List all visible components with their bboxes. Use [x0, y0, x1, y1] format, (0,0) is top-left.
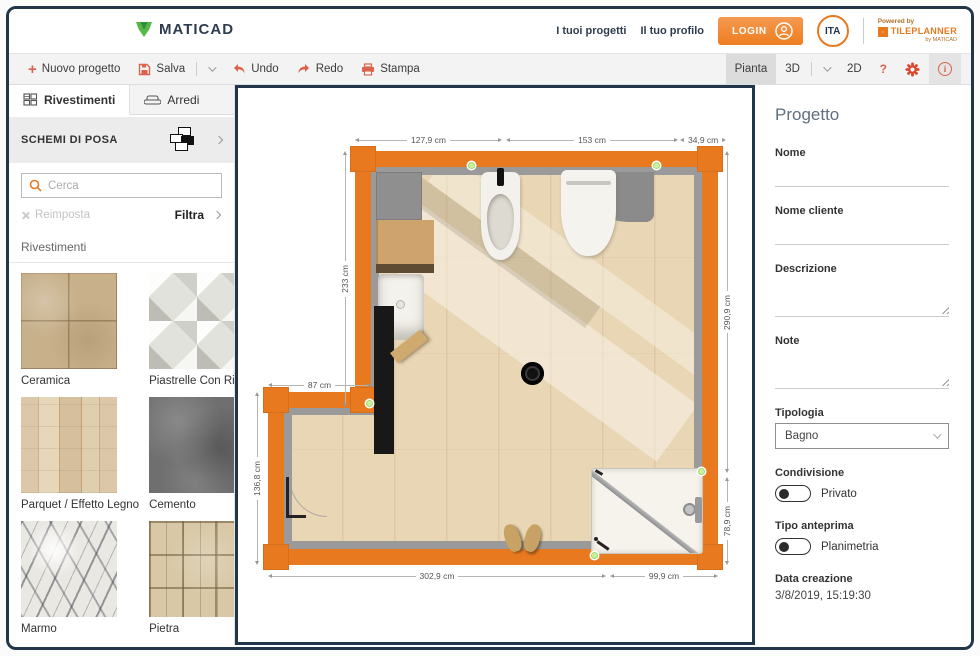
snap-point[interactable]	[591, 552, 598, 559]
settings-button[interactable]	[896, 54, 929, 84]
field-tipo-anteprima: Tipo anteprima Planimetria	[775, 520, 949, 555]
floor-drain[interactable]	[521, 362, 544, 385]
category-label: Marmo	[21, 623, 139, 635]
view-plan-button[interactable]: Pianta	[726, 54, 777, 84]
category-label: Parquet / Effetto Legno	[21, 499, 139, 511]
condivisione-toggle[interactable]	[775, 485, 811, 502]
ceramica-thumbnail	[21, 273, 117, 369]
note-label: Note	[775, 335, 949, 347]
field-nome-cliente: Nome cliente	[775, 205, 949, 245]
shower-shelf[interactable]	[376, 172, 422, 220]
nome-label: Nome	[775, 147, 949, 159]
shower-fitting	[594, 537, 598, 541]
wall-left-upper[interactable]	[355, 151, 371, 407]
tab-rivestimenti-label: Rivestimenti	[44, 93, 115, 107]
tipologia-select[interactable]: Bagno	[775, 423, 949, 449]
language-button[interactable]: ITA	[817, 15, 849, 47]
powered-by-block: Powered by TILEPLANNER by MATICAD	[878, 18, 957, 43]
wall-right[interactable]	[702, 151, 718, 565]
nome-cliente-label: Nome cliente	[775, 205, 949, 217]
data-creazione-value: 3/8/2019, 15:19:30	[775, 590, 949, 602]
slipper	[501, 522, 524, 553]
wall-left-lower[interactable]	[268, 392, 284, 565]
laying-scheme-icon	[170, 127, 200, 153]
redo-label: Redo	[316, 63, 344, 75]
wall-corner[interactable]	[263, 544, 289, 570]
chevron-right-icon	[215, 136, 223, 144]
powered-by-label: Powered by	[878, 18, 957, 26]
category-parquet[interactable]: Parquet / Effetto Legno	[21, 397, 139, 511]
view-3d-dropdown[interactable]	[814, 54, 838, 84]
bidet-tap	[497, 168, 504, 186]
print-icon	[361, 63, 375, 76]
field-tipologia: Tipologia Bagno	[775, 407, 949, 449]
toolbar: + Nuovo progetto Salva Undo Redo	[9, 53, 971, 85]
resize-handle-icon[interactable]	[941, 378, 949, 386]
descrizione-label: Descrizione	[775, 263, 949, 275]
rilievo-thumbnail	[149, 273, 235, 369]
dimension-label: 127,9 cm	[407, 136, 450, 145]
category-label: Cemento	[149, 499, 235, 511]
field-condivisione: Condivisione Privato	[775, 467, 949, 502]
header-divider	[863, 18, 864, 44]
reset-label: Reimposta	[35, 209, 90, 221]
info-icon: i	[938, 62, 952, 76]
tab-rivestimenti[interactable]: Rivestimenti	[9, 85, 130, 115]
info-button[interactable]: i	[929, 54, 961, 84]
chevron-down-icon	[208, 63, 216, 71]
view-2d-label: 2D	[847, 63, 862, 75]
tipologia-label: Tipologia	[775, 407, 949, 419]
resize-handle-icon[interactable]	[941, 306, 949, 314]
dimension-top-3: 34,9 cm	[680, 134, 718, 146]
tipo-anteprima-value: Planimetria	[821, 541, 879, 553]
dimension-label: 136,8 cm	[253, 457, 262, 500]
tileplanner-brand: TILEPLANNER	[891, 26, 957, 37]
laying-schemes-button[interactable]: SCHEMI DI POSA	[9, 117, 234, 163]
section-title: Rivestimenti	[9, 234, 234, 263]
vanity-counter[interactable]	[376, 220, 434, 268]
descrizione-textarea[interactable]	[775, 279, 949, 313]
data-creazione-label: Data creazione	[775, 573, 949, 585]
new-project-button[interactable]: + Nuovo progetto	[19, 54, 129, 84]
project-panel: Progetto Nome Nome cliente Descrizione N…	[755, 85, 971, 645]
shower-fitting	[596, 540, 609, 550]
tileplanner-icon	[878, 27, 888, 37]
floorplan: 127,9 cm 153 cm 34,9 cm 233 cm	[238, 88, 752, 642]
maticad-logo[interactable]: MATICAD	[135, 21, 234, 38]
redo-icon	[297, 63, 311, 75]
shower-tray[interactable]	[591, 468, 703, 554]
snap-point[interactable]	[366, 400, 373, 407]
filter-button[interactable]: Filtra	[165, 204, 222, 226]
bidet[interactable]	[481, 172, 520, 260]
tileplanner-sub: by MATICAD	[925, 37, 957, 44]
category-marmo[interactable]: Marmo	[21, 521, 139, 635]
wall-top[interactable]	[355, 151, 718, 167]
save-icon	[138, 63, 151, 76]
view-3d-label: 3D	[785, 63, 800, 75]
nome-input[interactable]	[775, 163, 949, 187]
dimension-label: 99,9 cm	[645, 572, 683, 581]
redo-button[interactable]: Redo	[288, 54, 353, 84]
dimension-left-upper: 233 cm	[338, 151, 352, 407]
toolbar-separator	[196, 62, 197, 76]
dimension-label: 290,9 cm	[723, 291, 732, 334]
reset-button[interactable]: Reimposta	[21, 209, 90, 221]
snap-point[interactable]	[653, 162, 660, 169]
login-label: LOGIN	[732, 26, 767, 37]
logo-text: MATICAD	[159, 21, 234, 38]
condivisione-label: Condivisione	[775, 467, 949, 479]
dimension-label: 87 cm	[304, 381, 335, 390]
user-icon	[775, 22, 793, 40]
dimension-top-2: 153 cm	[506, 134, 678, 146]
dimension-left-lower: 136,8 cm	[250, 392, 264, 565]
category-piastrelle-con-rilievo[interactable]: Piastrelle Con Rilievo	[149, 273, 235, 387]
app-window: MATICAD I tuoi progetti Il tuo profilo L…	[6, 6, 974, 650]
dimension-label: 233 cm	[341, 261, 350, 297]
field-data-creazione: Data creazione 3/8/2019, 15:19:30	[775, 573, 949, 602]
category-grid: Ceramica Piastrelle Con Rilievo Parquet …	[9, 263, 234, 645]
field-note: Note	[775, 335, 949, 389]
maticad-logo-icon	[135, 21, 153, 38]
toolbar-separator	[811, 62, 812, 76]
plus-icon: +	[28, 62, 37, 77]
category-label: Pietra	[149, 623, 235, 635]
vanity-counter-edge	[376, 264, 434, 273]
nome-cliente-input[interactable]	[775, 221, 949, 245]
snap-point[interactable]	[468, 162, 475, 169]
bidet-bowl	[487, 194, 514, 250]
category-cemento[interactable]: Cemento	[149, 397, 235, 511]
note-textarea[interactable]	[775, 351, 949, 385]
help-button[interactable]: ?	[871, 54, 896, 84]
panel-title: Progetto	[775, 105, 949, 125]
new-project-label: Nuovo progetto	[42, 63, 121, 75]
toilet[interactable]	[561, 170, 616, 256]
dimension-label: 302,9 cm	[416, 572, 459, 581]
chevron-down-icon	[933, 430, 941, 438]
toggle-knob	[779, 489, 789, 499]
dimension-right-lower: 78,9 cm	[720, 477, 734, 565]
save-dropdown-button[interactable]	[199, 54, 223, 84]
shower-arm	[695, 497, 702, 523]
condivisione-value: Privato	[821, 488, 857, 500]
door-foot	[286, 515, 306, 518]
marmo-thumbnail	[21, 521, 117, 617]
undo-button[interactable]: Undo	[223, 54, 288, 84]
laying-schemes-label: SCHEMI DI POSA	[21, 134, 170, 146]
category-label: Ceramica	[21, 375, 139, 387]
slippers[interactable]	[503, 524, 559, 554]
filter-row: Reimposta Filtra	[21, 204, 222, 226]
snap-point[interactable]	[698, 468, 705, 475]
login-button[interactable]: LOGIN	[718, 17, 803, 45]
wall-corner[interactable]	[350, 146, 376, 172]
tab-arredi[interactable]: Arredi	[130, 85, 213, 114]
flower-settings-icon	[905, 62, 920, 77]
dimension-top-1: 127,9 cm	[355, 134, 502, 146]
category-pietra[interactable]: Pietra	[149, 521, 235, 635]
nav-my-profile[interactable]: Il tuo profilo	[640, 25, 704, 37]
cemento-thumbnail	[149, 397, 235, 493]
chevron-right-icon	[213, 211, 221, 219]
parquet-thumbnail	[21, 397, 117, 493]
sidebar-tabs: Rivestimenti Arredi	[9, 85, 234, 115]
filter-label: Filtra	[175, 208, 204, 222]
header: MATICAD I tuoi progetti Il tuo profilo L…	[9, 9, 971, 53]
slipper	[521, 522, 543, 553]
chevron-down-icon	[823, 63, 831, 71]
sink-drain	[396, 300, 405, 309]
dimension-label: 78,9 cm	[723, 502, 732, 540]
view-2d-button[interactable]: 2D	[838, 54, 871, 84]
dimension-step: 87 cm	[268, 379, 371, 391]
view-3d-button[interactable]: 3D	[776, 54, 809, 84]
print-button[interactable]: Stampa	[352, 54, 429, 84]
undo-label: Undo	[251, 63, 279, 75]
sofa-icon	[144, 94, 161, 106]
field-nome: Nome	[775, 147, 949, 187]
dimension-label: 34,9 cm	[684, 136, 722, 145]
help-icon: ?	[880, 62, 887, 76]
field-descrizione: Descrizione	[775, 263, 949, 317]
sidebar: Rivestimenti Arredi SCHEMI DI POSA	[9, 85, 235, 645]
dimension-bottom-1: 302,9 cm	[268, 570, 606, 582]
tall-cabinet[interactable]	[374, 306, 394, 454]
toggle-knob	[779, 542, 789, 552]
tipo-anteprima-label: Tipo anteprima	[775, 520, 949, 532]
search-box	[21, 173, 222, 198]
dimension-right-upper: 290,9 cm	[720, 151, 734, 473]
save-label: Salva	[156, 63, 185, 75]
floorplan-canvas[interactable]: 127,9 cm 153 cm 34,9 cm 233 cm	[235, 85, 755, 645]
category-label: Piastrelle Con Rilievo	[149, 375, 235, 387]
close-icon	[21, 211, 30, 220]
undo-icon	[232, 63, 246, 75]
search-input[interactable]	[48, 180, 214, 192]
save-button[interactable]: Salva	[129, 54, 194, 84]
category-ceramica[interactable]: Ceramica	[21, 273, 139, 387]
print-label: Stampa	[380, 63, 420, 75]
pietra-thumbnail	[149, 521, 235, 617]
nav-my-projects[interactable]: I tuoi progetti	[556, 25, 626, 37]
view-plan-label: Pianta	[735, 63, 768, 75]
dimension-label: 153 cm	[574, 136, 610, 145]
tiles-icon	[23, 93, 38, 106]
toilet-seat-line	[566, 181, 611, 185]
dimension-bottom-2: 99,9 cm	[610, 570, 718, 582]
tab-arredi-label: Arredi	[167, 93, 199, 107]
tipo-anteprima-toggle[interactable]	[775, 538, 811, 555]
search-icon	[29, 179, 42, 192]
tipologia-value: Bagno	[785, 430, 818, 442]
